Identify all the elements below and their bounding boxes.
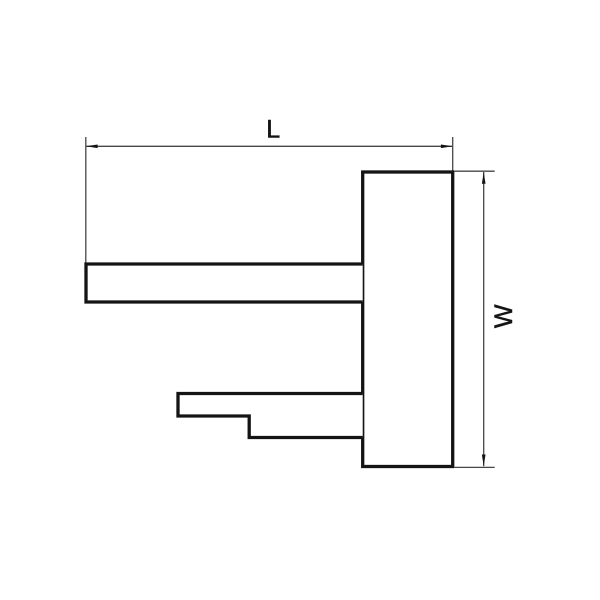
svg-text:L: L [266,116,280,144]
svg-text:W: W [490,304,518,328]
